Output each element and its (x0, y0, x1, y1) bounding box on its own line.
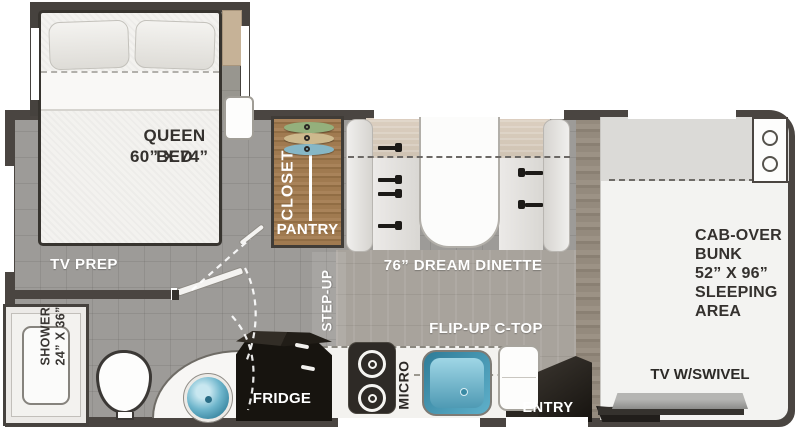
window-slideout-left (31, 28, 39, 100)
toilet-base (116, 412, 134, 420)
step-up-label: STEP-UP (314, 260, 340, 340)
seatbelt-icon (378, 143, 403, 152)
bath-sink-drain (205, 396, 212, 403)
seatbelt-icon (378, 189, 403, 198)
bunk-dashed-line (609, 179, 755, 181)
cooktop-icon (348, 342, 396, 414)
bunk-label-line5: AREA (695, 302, 741, 321)
dinette-dashed-line (348, 156, 570, 158)
hanger-hook-icon (304, 146, 310, 152)
hanger-hook-icon (304, 135, 310, 141)
door-hinge (172, 290, 179, 300)
tv-icon (612, 393, 748, 409)
pillow-icon (134, 20, 216, 71)
dinette-bench-left (346, 119, 373, 252)
fridge-label: FRIDGE (236, 390, 328, 407)
shower-pan: SHOWER 24” X 36” (22, 326, 70, 405)
shower-label-line1: SHOWER (39, 307, 54, 366)
shower-label-line2: 24” X 36” (54, 306, 69, 365)
seatbelt-icon (518, 168, 543, 177)
kitchen-sink-basin (430, 358, 484, 408)
rv-floorplan: QUEEN BED 60” X 74” TV PREP SHOWER 24” X… (0, 0, 800, 430)
dinette-bench-right (543, 119, 570, 252)
seatbelt-icon (518, 200, 543, 209)
bathroom-wall (5, 290, 177, 299)
bunk-label-line3: 52” X 96” (695, 264, 768, 283)
flip-up-ctop-label: FLIP-UP C-TOP (408, 320, 564, 337)
cupholder-icon (762, 156, 778, 172)
bunk-label-line2: BUNK (695, 245, 742, 264)
tv-swivel-label: TV W/SWIVEL (618, 366, 782, 383)
seatbelt-icon (378, 175, 403, 184)
closet-pantry-cabinet: CLOSET PANTRY (271, 116, 344, 248)
tv-prep-label: TV PREP (28, 256, 140, 273)
dinette-label: 76” DREAM DINETTE (352, 257, 574, 274)
closet-label: CLOSET (276, 145, 300, 225)
queen-bed-label-line2: 60” X 74” (130, 146, 208, 167)
nightstand (224, 96, 254, 140)
entry-label: ENTRY (510, 400, 586, 416)
burner-icon (358, 384, 386, 412)
burner-icon (358, 350, 386, 378)
bedside-wardrobe (222, 10, 242, 66)
pantry-label: PANTRY (274, 221, 341, 238)
queen-bed: QUEEN BED 60” X 74” (38, 10, 222, 246)
bed-fold-band (41, 71, 219, 111)
shower-stall: SHOWER 24” X 36” (3, 304, 89, 426)
cab-dash-panel (752, 117, 788, 183)
cupholder-icon (762, 130, 778, 146)
closet-label-text: CLOSET (279, 150, 297, 221)
shower-pan-bevel: SHOWER 24” X 36” (11, 313, 81, 417)
entry-door-step (506, 417, 588, 428)
dinette-cushion-left (373, 158, 420, 250)
bunk-label-line4: SLEEPING (695, 283, 778, 302)
pillow-icon (48, 20, 130, 71)
microwave-label: MICRO (393, 350, 415, 420)
bunk-label-line1: CAB-OVER (695, 226, 782, 245)
window-cab (628, 110, 736, 119)
kitchen-sink-icon (422, 350, 492, 416)
dinette-table (419, 117, 500, 248)
window-rear (5, 166, 14, 272)
microwave-label-text: MICRO (396, 360, 412, 409)
hanger-hook-icon (304, 124, 310, 130)
step-up-label-text: STEP-UP (320, 269, 335, 331)
window-slideout-right (241, 26, 249, 98)
cab-over-bunk-label: CAB-OVER BUNK 52” X 96” SLEEPING AREA (606, 226, 784, 302)
queen-bed-label: QUEEN BED 60” X 74” (41, 125, 219, 146)
kitchen-sink-drain (460, 388, 468, 396)
seatbelt-icon (378, 221, 403, 230)
flip-up-seam (502, 377, 536, 378)
